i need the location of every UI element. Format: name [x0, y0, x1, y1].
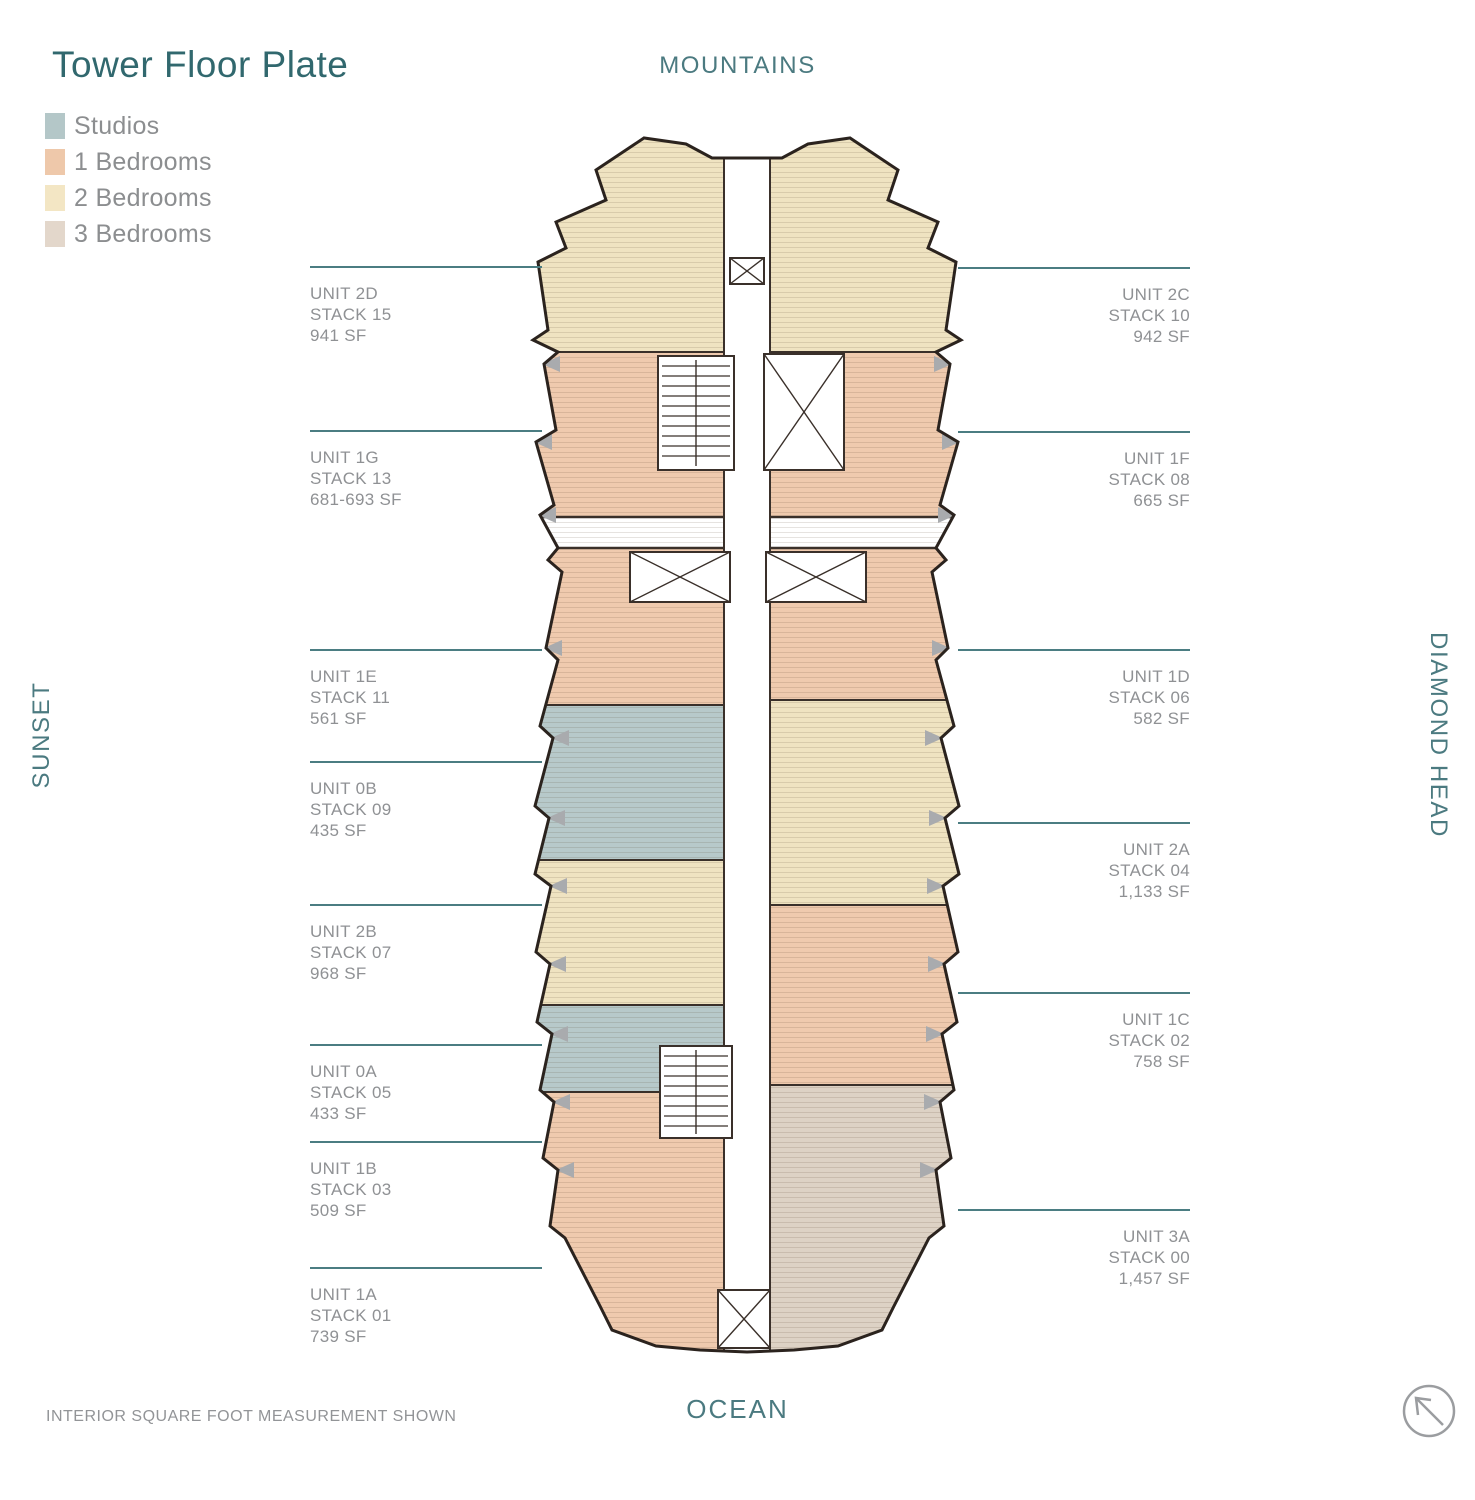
unit-label-1g: UNIT 1G STACK 13 681-693 SF: [310, 430, 542, 510]
pointer-line: [310, 266, 542, 268]
unit-sf: 739 SF: [310, 1326, 542, 1347]
legend-item-3-bedrooms: 3 Bedrooms: [45, 216, 212, 252]
unit-name: UNIT 1D: [958, 666, 1190, 687]
legend-item-1-bedrooms: 1 Bedrooms: [45, 144, 212, 180]
legend: Studios 1 Bedrooms 2 Bedrooms 3 Bedrooms: [45, 108, 212, 252]
three-bedroom-swatch: [45, 221, 65, 247]
unit-stack: STACK 05: [310, 1082, 542, 1103]
pointer-line: [958, 822, 1190, 824]
pointer-line: [958, 992, 1190, 994]
unit-stack: STACK 09: [310, 799, 542, 820]
unit-label-2b: UNIT 2B STACK 07 968 SF: [310, 904, 542, 984]
legend-label: 3 Bedrooms: [74, 220, 212, 249]
unit-stack: STACK 11: [310, 687, 542, 708]
unit-name: UNIT 3A: [958, 1226, 1190, 1247]
unit-label-1c: UNIT 1C STACK 02 758 SF: [958, 992, 1190, 1072]
unit-stack: STACK 01: [310, 1305, 542, 1326]
pointer-line: [958, 431, 1190, 433]
unit-sf: 509 SF: [310, 1200, 542, 1221]
unit-label-1a: UNIT 1A STACK 01 739 SF: [310, 1267, 542, 1347]
legend-label: Studios: [74, 112, 160, 141]
unit-name: UNIT 0B: [310, 778, 542, 799]
unit-sf: 582 SF: [958, 708, 1190, 729]
tower-floor-plate-page: Tower Floor Plate Studios 1 Bedrooms 2 B…: [0, 0, 1475, 1500]
pointer-line: [958, 267, 1190, 269]
orientation-label-diamond-head: DIAMOND HEAD: [1424, 632, 1452, 838]
footnote: INTERIOR SQUARE FOOT MEASUREMENT SHOWN: [46, 1408, 456, 1426]
orientation-label-sunset: SUNSET: [28, 682, 56, 789]
legend-label: 1 Bedrooms: [74, 148, 212, 177]
unit-sf: 758 SF: [958, 1051, 1190, 1072]
unit-stack: STACK 13: [310, 468, 542, 489]
unit-stack: STACK 08: [958, 469, 1190, 490]
floor-plan-units: [500, 130, 1000, 1360]
unit-label-1d: UNIT 1D STACK 06 582 SF: [958, 649, 1190, 729]
unit-sf: 1,457 SF: [958, 1268, 1190, 1289]
unit-sf: 665 SF: [958, 490, 1190, 511]
orientation-label-mountains: MOUNTAINS: [659, 52, 816, 80]
unit-sf: 561 SF: [310, 708, 542, 729]
unit-sf: 681-693 SF: [310, 489, 542, 510]
unit-stack: STACK 04: [958, 860, 1190, 881]
unit-name: UNIT 2D: [310, 283, 542, 304]
unit-label-1f: UNIT 1F STACK 08 665 SF: [958, 431, 1190, 511]
pointer-line: [310, 1044, 542, 1046]
pointer-line: [310, 904, 542, 906]
studios-swatch: [45, 113, 65, 139]
unit-name: UNIT 2C: [958, 284, 1190, 305]
unit-label-0b: UNIT 0B STACK 09 435 SF: [310, 761, 542, 841]
legend-item-2-bedrooms: 2 Bedrooms: [45, 180, 212, 216]
two-bedroom-swatch: [45, 185, 65, 211]
unit-label-0a: UNIT 0A STACK 05 433 SF: [310, 1044, 542, 1124]
unit-name: UNIT 2A: [958, 839, 1190, 860]
one-bedroom-swatch: [45, 149, 65, 175]
unit-stack: STACK 02: [958, 1030, 1190, 1051]
unit-sf: 1,133 SF: [958, 881, 1190, 902]
unit-sf: 433 SF: [310, 1103, 542, 1124]
pointer-line: [958, 1209, 1190, 1211]
unit-name: UNIT 1A: [310, 1284, 542, 1305]
legend-label: 2 Bedrooms: [74, 184, 212, 213]
orientation-label-ocean: OCEAN: [686, 1394, 788, 1425]
unit-sf: 941 SF: [310, 325, 542, 346]
unit-label-2d: UNIT 2D STACK 15 941 SF: [310, 266, 542, 346]
north-arrow-icon: [1398, 1380, 1460, 1442]
unit-name: UNIT 1F: [958, 448, 1190, 469]
unit-label-1e: UNIT 1E STACK 11 561 SF: [310, 649, 542, 729]
unit-label-3a: UNIT 3A STACK 00 1,457 SF: [958, 1209, 1190, 1289]
unit-stack: STACK 06: [958, 687, 1190, 708]
pointer-line: [310, 761, 542, 763]
pointer-line: [310, 430, 542, 432]
floor-plan: [0, 0, 1475, 1500]
unit-label-2a: UNIT 2A STACK 04 1,133 SF: [958, 822, 1190, 902]
unit-sf: 435 SF: [310, 820, 542, 841]
unit-label-2c: UNIT 2C STACK 10 942 SF: [958, 267, 1190, 347]
unit-name: UNIT 1B: [310, 1158, 542, 1179]
page-title: Tower Floor Plate: [52, 44, 348, 86]
corridor: [724, 158, 770, 1352]
unit-name: UNIT 1E: [310, 666, 542, 687]
unit-stack: STACK 15: [310, 304, 542, 325]
pointer-line: [310, 649, 542, 651]
unit-stack: STACK 10: [958, 305, 1190, 326]
unit-name: UNIT 1G: [310, 447, 542, 468]
legend-item-studios: Studios: [45, 108, 212, 144]
unit-stack: STACK 00: [958, 1247, 1190, 1268]
pointer-line: [310, 1141, 542, 1143]
unit-name: UNIT 1C: [958, 1009, 1190, 1030]
pointer-line: [958, 649, 1190, 651]
unit-label-1b: UNIT 1B STACK 03 509 SF: [310, 1141, 542, 1221]
pointer-line: [310, 1267, 542, 1269]
unit-sf: 968 SF: [310, 963, 542, 984]
unit-sf: 942 SF: [958, 326, 1190, 347]
unit-stack: STACK 07: [310, 942, 542, 963]
unit-name: UNIT 0A: [310, 1061, 542, 1082]
unit-stack: STACK 03: [310, 1179, 542, 1200]
unit-name: UNIT 2B: [310, 921, 542, 942]
